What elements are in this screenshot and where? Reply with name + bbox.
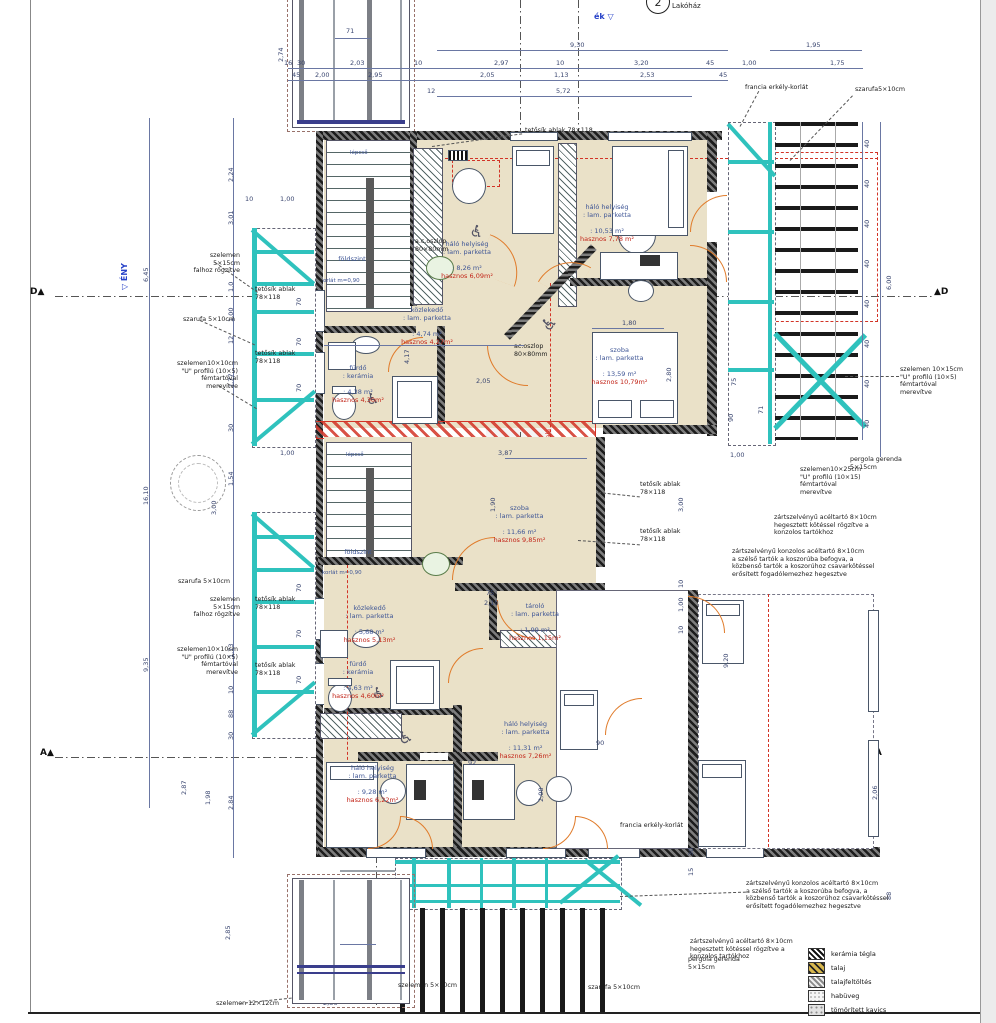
dim-label: 16,10 [143,486,150,505]
wall-right-lower [596,437,605,567]
dim-label: 70 [296,338,303,346]
dim-label: 40 [864,180,871,188]
gravel-swatch-icon [808,1004,825,1016]
window-mullion [299,880,304,1000]
note-zart-konzol-bottom: zártszelvényű konzolos acéltartó 8×10cm … [746,880,906,910]
skylight-box-bottom-outline [287,874,415,1008]
wardrobe-strip [320,713,402,739]
dim-label: 2,97 [494,60,508,67]
dim-label: 10 [678,580,685,588]
dim-label: 2,84 [228,796,235,810]
legend-label: kerámia tégla [831,950,876,958]
window-mullion [333,0,335,124]
dim-label: 75 [731,378,738,386]
stair-rail-note: korlát m=0,90 [320,278,360,284]
balcony-rail [728,160,774,164]
dim-label: 71 [346,28,354,35]
chair [546,776,572,802]
note-szelemen-5x10-bottom: szelemen 5×10cm [398,982,457,990]
dim-label: 1,95 [806,42,820,49]
sheet-right-margin [980,0,996,1023]
room-label-halo-1131: háló helyiség: lam. parketta : 11,31 m²h… [478,712,573,768]
stair-label: lépcső [346,452,364,458]
dim-line [149,118,150,808]
dim-label: 40 [864,260,871,268]
table-round [422,552,450,576]
legend-row: talajfeltöltés [808,976,886,987]
legend-label: talajfeltöltés [831,978,872,986]
note-tetosik-ablak: tetősík ablak 78×118 [255,286,307,301]
section-marker-d-right: ▲D [934,287,948,297]
note-francia-erkely: francia erkély-korlát [745,84,808,92]
dim-label: 16 [284,60,292,67]
dim-label: 1,00 [730,452,744,459]
window-mullion [367,0,372,124]
pergola-post [512,858,516,908]
note-tetosik-ablak: tetősík ablak 78×118 [255,596,307,611]
dim-label: 2,06 [872,786,879,800]
radiator [448,150,468,161]
dim-label: 10 [556,60,564,67]
dim-label: 2,24 [228,168,235,182]
dim-label: 88 [228,710,235,718]
material-legend: kerámia tégla talaj talajfeltöltés habüv… [808,948,886,1015]
dim-label: 1,00 [742,60,756,67]
dim-label: 71 [758,406,765,414]
dim-line [437,50,728,51]
monitor [414,780,426,800]
note-szarufa-bottom: szarufa 5×10cm [588,984,640,992]
dim-label: 1,54 [228,472,235,486]
pergola-beam [395,884,620,887]
dim-line [288,68,863,69]
room-label-furdo-lower: fürdő: kerámia : 4,63 m²hasznos 4,60m² [328,652,388,708]
direction-eny: ▽ ÉNY [120,263,129,290]
note-szelemen-10x10: szelemen10×10cm "U" profilú (10×5) fémta… [158,360,238,390]
dim-label: 45 [292,72,300,79]
dim-line [592,328,664,329]
window-bottom [366,848,426,858]
room-label-szoba-1166: szoba: lam. parketta : 11,66 m²hasznos 9… [472,496,567,552]
dim-label: 1,80 [622,320,636,327]
dim-label: 9,30 [570,42,584,49]
door-gap [420,753,448,760]
dim-label: 40 [864,380,871,388]
dim-label: 1,00 [678,598,685,612]
unit-2-marker: 2 [646,0,670,14]
dim-label: 3,20 [634,60,648,67]
dim-label: 2,00 [315,72,329,79]
dim-label: 1,00 [280,196,294,203]
dim-line [340,944,376,945]
stair-rail [366,178,374,308]
desk [463,764,515,820]
dim-label: 75 [486,590,494,597]
dim-line [770,50,862,51]
sheet-left-border [30,0,31,1012]
dim-label: 40 [864,140,871,148]
dim-label: 12 [228,336,235,344]
dim-label: 2,03 [350,60,364,67]
dim-label: 2,05 [480,72,494,79]
window-top [608,132,692,141]
room-label-szoba-1359: szoba: lam. parketta : 13,59 m²hasznos 1… [572,338,667,394]
dim-label: 10 [228,686,235,694]
dim-label: 70 [296,384,303,392]
note-szelemen-5x15: szelemen 5×15cm falhoz rögzítve [168,596,240,619]
window-sill [297,120,405,124]
dim-label: 9,35 [143,658,150,672]
column-note: a.c.oszlop 80×80mm [415,238,449,253]
dim-label: 30 [228,424,235,432]
dim-label: 2,05 [476,378,490,385]
note-pergola-bottom: pergola gerenda 5×15cm [688,956,740,971]
dim-label: 1,98 [205,791,212,805]
dim-label: 70 [296,630,303,638]
window-sill [297,965,405,968]
stair-rail-note: korlát m=0,90 [322,570,362,576]
window-mullion [400,0,402,124]
dim-line [335,38,371,39]
dim-label: 10 [414,60,422,67]
fill-swatch-icon [808,976,825,988]
dim-label: 45 [706,60,714,67]
note-szelemen-10x15: szelemen 10×15cm "U" profilú (10×5) fémt… [900,366,980,396]
unit-2-label: Lakóház [672,2,701,10]
soil-swatch-icon [808,962,825,974]
dim-label: 12 [427,88,435,95]
dim-label: 1,00 [280,450,294,457]
leader-line [620,892,746,897]
dim-label: 3,01 [228,211,235,225]
legend-row: tömörített kavics [808,1004,886,1015]
window-right [868,610,879,712]
pergola-post [480,858,483,908]
dim-line [437,96,692,97]
section-marker-a-left: A▲ [40,748,54,758]
desk [600,252,678,280]
legend-label: talaj [831,964,845,972]
dim-label: 4,17 [404,350,411,364]
dim-label: 30 [228,732,235,740]
pergola-beam [395,900,620,903]
wall-bottom-rooms-divider [453,705,462,850]
balcony-rail [252,310,314,314]
chair [628,280,654,302]
window-sill [297,972,405,974]
dim-line [505,458,587,459]
dim-label: 15 [688,868,695,876]
legend-row: talaj [808,962,886,973]
dim-label: 40 [864,220,871,228]
note-tetosik-ablak-top: tetősík ablak 78×118 [525,127,593,135]
note-tetosik-ablak-right: tetősík ablak 78×118 [640,528,692,543]
balcony-rail [252,568,314,572]
dim-label: 1,0 [228,282,235,292]
dim-label: 2,95 [368,72,382,79]
axis-line-vertical [578,0,579,140]
room-label-kozlekedo-568: közlekedő: lam. parketta : 5,68 m²haszno… [322,596,417,652]
dim-label: 2,87 [181,781,188,795]
bed-pillow [640,400,674,418]
room-label-tarolo: tároló: lam. parketta : 1,99 m²hasznos 1… [490,594,580,650]
note-szelemen-10x10: szelemen10×10cm "U" profilú (10×5) fémta… [158,646,238,676]
legend-label: tömörített kavics [831,1006,886,1014]
leader-line [845,376,899,377]
dim-label: 40 [864,300,871,308]
balcony-rail [728,230,774,234]
dim-label: 1,90 [490,498,497,512]
dim-label: 2,74 [278,48,285,62]
dim-label: 2,80 [666,368,673,382]
balcony-rail [252,512,257,737]
legend-row: kerámia tégla [808,948,886,959]
stair-floor-ref: földszint [322,255,382,263]
dim-label: 30 [297,60,305,67]
room-label-halo-1053: háló helyiség: lam. parketta : 10,53 m²h… [562,195,652,251]
window-mullion [333,880,335,1000]
door-arc [690,245,727,282]
floorplan-sheet: D▲ ▲D A▲ ▲A 2 Lakóház ék ▽ ▽ ÉNY ▽ DK 1 … [0,0,996,1023]
rafter-field [775,122,858,440]
note-szarufa-5x10: szarufa 5×10cm [152,578,230,586]
brick-swatch-icon [808,948,825,960]
stair-label: lépcső [350,150,368,156]
pergola-post [545,858,548,908]
dim-label: 30 [688,848,695,856]
bed-pillow [598,400,632,418]
legend-row: habüveg [808,990,886,1001]
dim-line [288,80,728,81]
balcony-rail [728,300,774,304]
stair-rail [366,468,374,560]
window-bottom [506,848,566,858]
dim-label: 92 [468,760,476,767]
tree-symbol-inner [178,463,218,503]
dim-label: 2,10 [484,600,498,607]
shower-tray [397,381,432,418]
dim-label: 40 [864,340,871,348]
balcony-rail [252,228,257,446]
note-zart-konzol: zártszelvényű konzolos acéltartó 8×10cm … [732,548,892,578]
unit-2-number: 2 [655,0,662,9]
dim-line [324,345,524,346]
note-szarufa-5x10: szarufa 5×10cm [160,316,235,324]
foamglass-swatch-icon [808,990,825,1002]
note-tetosik-ablak: tetősík ablak 78×118 [255,350,307,365]
note-tetosik-ablak-right: tetősík ablak 78×118 [640,481,692,496]
dim-line [862,122,863,440]
monitor [472,780,484,800]
dim-line [233,118,234,858]
note-szarufa-top: szarufa5×10cm [855,86,905,94]
dim-label: 3,87 [498,450,512,457]
dim-label: 5,72 [556,88,570,95]
room-label-halo-928: háló helyiség: lam. parketta : 9,28 m²ha… [330,756,415,812]
dim-line [880,122,881,457]
balcony-rail [728,368,774,372]
window-bottom [706,848,764,858]
dim-label: 70 [296,584,303,592]
dim-label: 90 [596,740,604,747]
pergola-rafter-field [400,908,618,1012]
section-marker-d-left: D▲ [30,287,44,297]
dim-label: 10 [678,626,685,634]
shower-tray [396,666,434,704]
wall-bottom-right-upper [603,425,717,434]
dim-label: 9,20 [723,654,730,668]
dim-label: 90 [728,414,735,422]
dim-label: 6,45 [143,268,150,282]
bed-pillow [702,764,742,778]
dim-label: 10 [245,196,253,203]
dim-label: 45 [719,72,727,79]
room-label-furdo-upper: fürdő: kerámia : 4,38 m²hasznos 4,30m² [328,356,388,412]
window-left [315,352,325,394]
bed-pillow [668,150,684,228]
water-heater [452,168,486,204]
pergola-post [447,858,451,908]
note-tetosik-ablak: tetősík ablak 78×118 [255,662,307,677]
stair-floor-ref: földszint [328,548,388,556]
rafter-guide [800,122,801,440]
bed-pillow [516,150,550,166]
dim-label: 40 [864,420,871,428]
note-francia-erkely-bottom: francia erkély-korlát [620,822,683,830]
dim-label: 6,00 [886,276,893,290]
dim-label: 1,13 [554,72,568,79]
bed-pillow [564,694,594,706]
dim-label: 3,00 [678,498,685,512]
direction-ek: ék ▽ [594,12,614,21]
dim-label: 2,53 [640,72,654,79]
note-szelemen-10x25: szelemen10×25cm "U" profilú (10×15) fémt… [800,466,880,496]
balcony-rail [252,645,314,649]
note-zart-acel: zártszelvényű acéltartó 8×10cm hegesztet… [774,514,904,537]
window-mullion [367,880,372,1000]
wall-left [316,131,323,857]
dim-label: 2,08 [538,788,545,802]
headroom-line-vertical [768,594,769,847]
legend-label: habüveg [831,992,859,1000]
dim-label: 2,85 [225,926,232,940]
wall-right-upper [707,131,717,436]
dim-label: 1,75 [830,60,844,67]
monitor [640,255,660,266]
